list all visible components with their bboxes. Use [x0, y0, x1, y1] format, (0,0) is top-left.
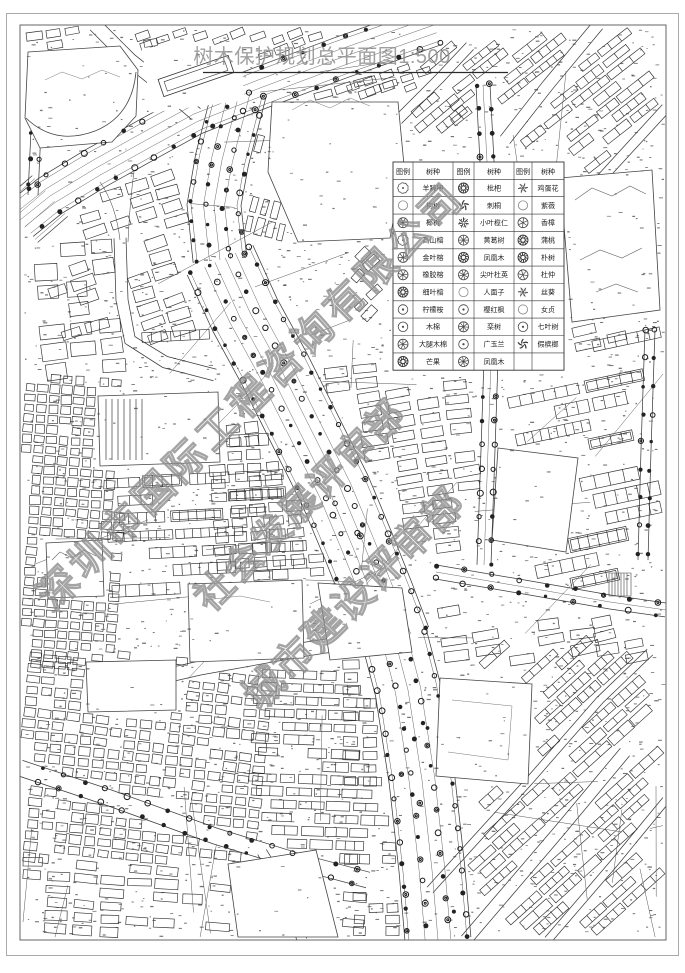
svg-text:凤凰木: 凤凰木	[484, 357, 505, 366]
svg-text:栾树: 栾树	[487, 322, 501, 331]
svg-text:细叶榕: 细叶榕	[423, 288, 444, 297]
svg-text:树种: 树种	[541, 167, 555, 176]
svg-text:柠檬桉: 柠檬桉	[423, 305, 444, 314]
svg-text:樱红枫: 樱红枫	[484, 305, 505, 314]
svg-text:尖叶杜英: 尖叶杜英	[480, 270, 508, 279]
svg-text:丝葵: 丝葵	[541, 288, 555, 297]
svg-text:树种: 树种	[487, 167, 501, 176]
svg-text:朴树: 朴树	[541, 253, 555, 262]
svg-text:图例: 图例	[516, 167, 530, 176]
svg-text:大腿木棉: 大腿木棉	[419, 340, 447, 349]
svg-text:女贞: 女贞	[541, 305, 555, 314]
svg-text:广玉兰: 广玉兰	[484, 340, 505, 349]
svg-text:金叶榕: 金叶榕	[423, 253, 444, 262]
svg-text:蒲桃: 蒲桃	[541, 236, 555, 245]
svg-text:七叶树: 七叶树	[538, 322, 559, 331]
svg-text:木棉: 木棉	[426, 322, 440, 331]
svg-text:刺桐: 刺桐	[487, 201, 501, 210]
svg-text:图例: 图例	[457, 167, 471, 176]
svg-text:橡胶榕: 橡胶榕	[423, 270, 444, 279]
svg-text:树木保护规划总平面图1:500: 树木保护规划总平面图1:500	[193, 45, 451, 68]
svg-text:紫薇: 紫薇	[541, 201, 555, 210]
svg-text:假槟榔: 假槟榔	[538, 340, 559, 349]
svg-text:凤凰木: 凤凰木	[484, 253, 505, 262]
svg-text:杜仲: 杜仲	[541, 270, 555, 279]
svg-text:鸡蛋花: 鸡蛋花	[538, 183, 559, 192]
svg-text:树种: 树种	[426, 167, 440, 176]
svg-text:图例: 图例	[396, 167, 410, 176]
svg-text:黄葛树: 黄葛树	[484, 236, 505, 245]
svg-text:人面子: 人面子	[484, 289, 505, 297]
svg-text:香樟: 香樟	[541, 218, 555, 227]
svg-text:小叶榄仁: 小叶榄仁	[480, 218, 508, 227]
svg-text:芒果: 芒果	[426, 357, 440, 366]
svg-text:枇杷: 枇杷	[487, 183, 501, 192]
